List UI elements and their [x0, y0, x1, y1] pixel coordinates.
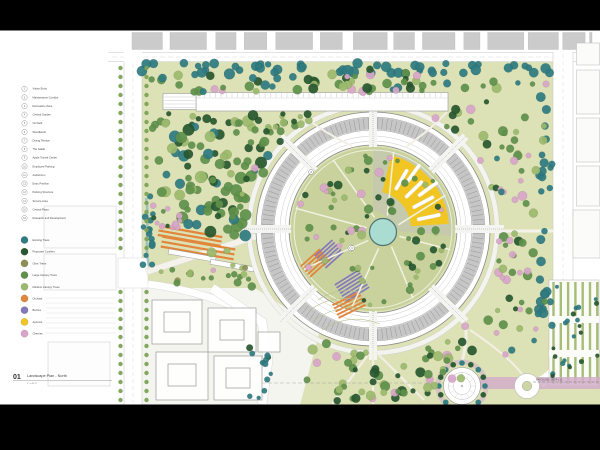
legend-item-numbered: 12Entry Pavilion	[22, 181, 50, 186]
legend-item-numbered: 15Central Plaza	[22, 207, 49, 212]
legend-item-numbered: 11Auditorium	[22, 172, 46, 177]
svg-text:Apricots: Apricots	[33, 320, 43, 324]
matchline-label: MATCHLINE, SEE P-1.11	[536, 379, 563, 382]
svg-text:Large Canopy Trees: Large Canopy Trees	[33, 273, 58, 277]
svg-text:Proposed Conifers: Proposed Conifers	[33, 250, 56, 254]
svg-text:Cherries: Cherries	[33, 332, 44, 336]
legend-item-numbered: 1Visitor Entry	[22, 86, 48, 91]
svg-text:Employee Parking: Employee Parking	[33, 164, 55, 168]
north-parking-structure	[163, 93, 448, 112]
legend-item-numbered: 14Service Area	[22, 198, 48, 203]
svg-text:The Glade: The Glade	[33, 147, 46, 151]
offsite-blocks-north	[132, 33, 592, 50]
svg-text:Service Area: Service Area	[33, 199, 49, 203]
svg-text:Medium Canopy Trees: Medium Canopy Trees	[33, 285, 61, 289]
site-plan-drawing: MATCHLINE, SEE P-1.11 46 1Visitor Entry2…	[0, 0, 600, 450]
legend-item-numbered: 13Parking Structure	[22, 190, 54, 195]
sheet-scale: 1" = 40'-0"	[27, 383, 37, 385]
svg-text:Auditorium: Auditorium	[33, 173, 47, 177]
letterbox-top	[0, 0, 600, 31]
legend-item-numbered: 3Recreation Zone	[22, 103, 53, 108]
callout-marker: 4	[309, 170, 314, 175]
letterbox-bottom	[0, 405, 600, 450]
svg-text:Dining Terrace: Dining Terrace	[33, 138, 51, 142]
svg-text:Entry Pavilion: Entry Pavilion	[33, 182, 50, 186]
svg-text:Recreation Zone: Recreation Zone	[33, 104, 53, 108]
legend-item-numbered: 10Employee Parking	[22, 164, 55, 169]
svg-text:Orchard: Orchard	[33, 297, 43, 301]
svg-text:Parking Structure: Parking Structure	[33, 190, 54, 194]
sheet-title: Landscape Plan - North	[27, 374, 67, 378]
legend-item-numbered: 8The Glade	[22, 146, 46, 151]
legend-item-numbered: 4Central Garden	[22, 112, 52, 117]
svg-text:Central Plaza: Central Plaza	[33, 207, 50, 211]
svg-text:Berries: Berries	[33, 308, 42, 312]
svg-text:Existing Trees: Existing Trees	[33, 238, 51, 242]
east-parking-lot	[549, 280, 599, 386]
legend-item-numbered: 5Orchard	[22, 121, 43, 126]
legend-item-numbered: 6Woodlands	[22, 129, 47, 134]
callout-marker: 6	[350, 246, 355, 251]
svg-text:Woodlands: Woodlands	[33, 130, 47, 134]
svg-text:Apple Transit Center: Apple Transit Center	[33, 156, 58, 160]
legend-item-numbered: 7Dining Terrace	[22, 138, 50, 143]
svg-text:Visitor Entry: Visitor Entry	[33, 87, 48, 91]
svg-text:Olive Trees: Olive Trees	[33, 261, 47, 265]
parking-ramp	[163, 94, 196, 110]
svg-text:Central Garden: Central Garden	[33, 113, 52, 117]
sheet-number: 01	[13, 374, 21, 381]
svg-text:Research and Development: Research and Development	[33, 216, 67, 220]
svg-text:Maintenance Corridor: Maintenance Corridor	[33, 95, 59, 99]
landscape-plan-sheet: MATCHLINE, SEE P-1.11 46 1Visitor Entry2…	[0, 0, 600, 450]
svg-text:Orchard: Orchard	[33, 121, 43, 125]
central-pond	[370, 219, 397, 246]
